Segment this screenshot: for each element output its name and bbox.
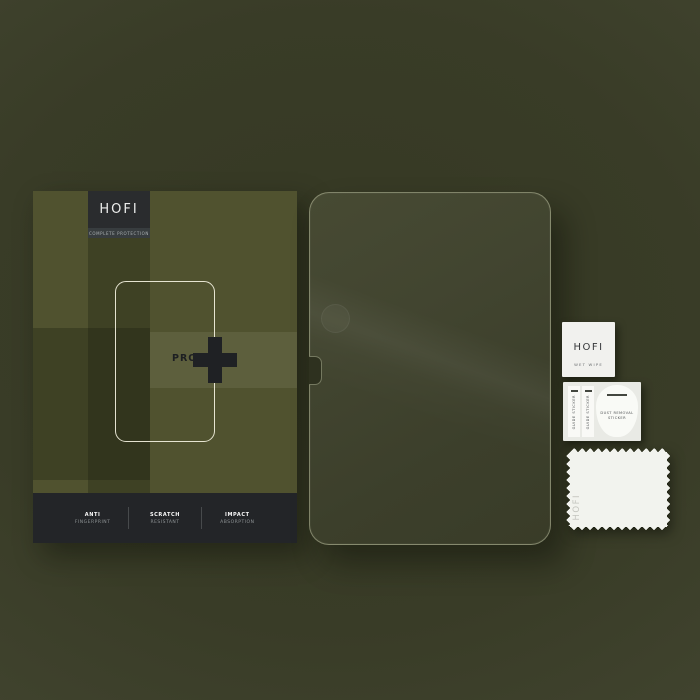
feature-impact-absorption: IMPACT ABSORPTION — [202, 512, 273, 525]
dust-removal-label: STICKER — [596, 416, 638, 420]
feature-subtitle: ABSORPTION — [220, 520, 254, 525]
cloth-brand: HOFI — [572, 494, 582, 520]
sticker-cut-line — [607, 394, 627, 396]
brand-tagline-text: COMPLETE PROTECTION — [89, 231, 149, 236]
sticker-cut-line — [585, 390, 592, 392]
cloth-surface — [570, 452, 667, 527]
feature-title: IMPACT — [225, 512, 250, 518]
plus-icon — [193, 337, 237, 383]
glass-reflection — [310, 193, 550, 544]
wet-wipe-brand: HOFI — [562, 342, 615, 353]
brand-logo: HOFI — [99, 202, 138, 217]
feature-subtitle: FINGERPRINT — [75, 520, 111, 525]
sticker-cut-line — [571, 390, 578, 392]
guide-sticker-label: GUIDE STICKER — [586, 395, 590, 429]
guide-sticker-strip: GUIDE STICKER — [582, 386, 594, 437]
cloth-zigzag-edge — [666, 452, 670, 526]
scene: HOFI COMPLETE PROTECTION PRO ANTI FINGER… — [0, 0, 700, 700]
product-box: HOFI COMPLETE PROTECTION PRO ANTI FINGER… — [33, 191, 297, 543]
guide-sticker-label: GUIDE STICKER — [572, 395, 576, 429]
feature-anti-fingerprint: ANTI FINGERPRINT — [57, 512, 128, 525]
brand-logo-square: HOFI — [88, 191, 150, 228]
camera-cutout — [321, 304, 350, 333]
glass-protector — [309, 192, 551, 545]
feature-title: ANTI — [85, 512, 101, 518]
wet-wipe-label: WET WIPE — [562, 362, 615, 367]
dust-removal-label: DUST REMOVAL — [596, 411, 638, 415]
feature-scratch-resistant: SCRATCH RESISTANT — [129, 512, 200, 525]
plus-icon-horizontal-bar — [193, 353, 237, 367]
sticker-sheet: GUIDE STICKER GUIDE STICKER DUST REMOVAL… — [563, 382, 641, 441]
feature-title: SCRATCH — [150, 512, 180, 518]
feature-subtitle: RESISTANT — [150, 520, 179, 525]
dust-removal-sticker: DUST REMOVAL STICKER — [596, 385, 638, 437]
cloth-zigzag-edge — [570, 526, 666, 530]
wet-wipe-packet: HOFI WET WIPE — [562, 322, 615, 377]
features-bar: ANTI FINGERPRINT SCRATCH RESISTANT IMPAC… — [33, 493, 297, 543]
microfiber-cloth: HOFI — [566, 448, 670, 530]
guide-sticker-strip: GUIDE STICKER — [568, 386, 580, 437]
edge-notch — [309, 356, 322, 385]
brand-tagline: COMPLETE PROTECTION — [88, 228, 150, 238]
